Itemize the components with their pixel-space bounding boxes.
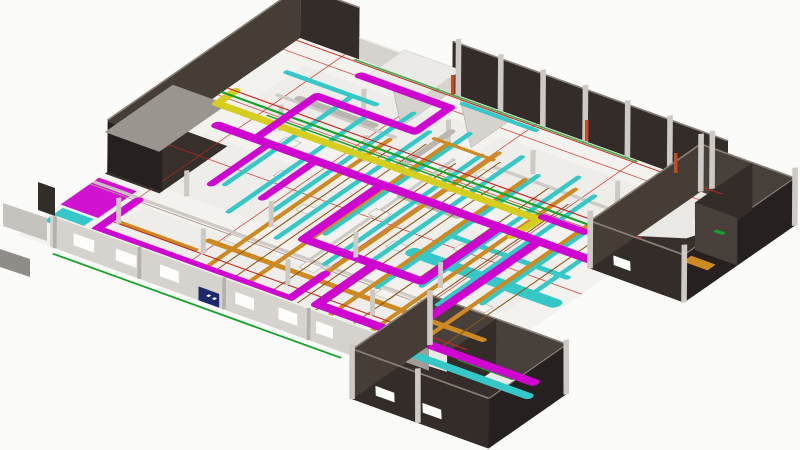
- dark-wall-fin: [38, 182, 55, 216]
- bim-3d-viewport[interactable]: Isometric 3D BIM view of a building floo…: [0, 0, 800, 450]
- wall-joint: [674, 153, 678, 173]
- wall-joint: [451, 75, 455, 95]
- wall-joint: [585, 120, 589, 141]
- model-canvas[interactable]: [0, 0, 800, 450]
